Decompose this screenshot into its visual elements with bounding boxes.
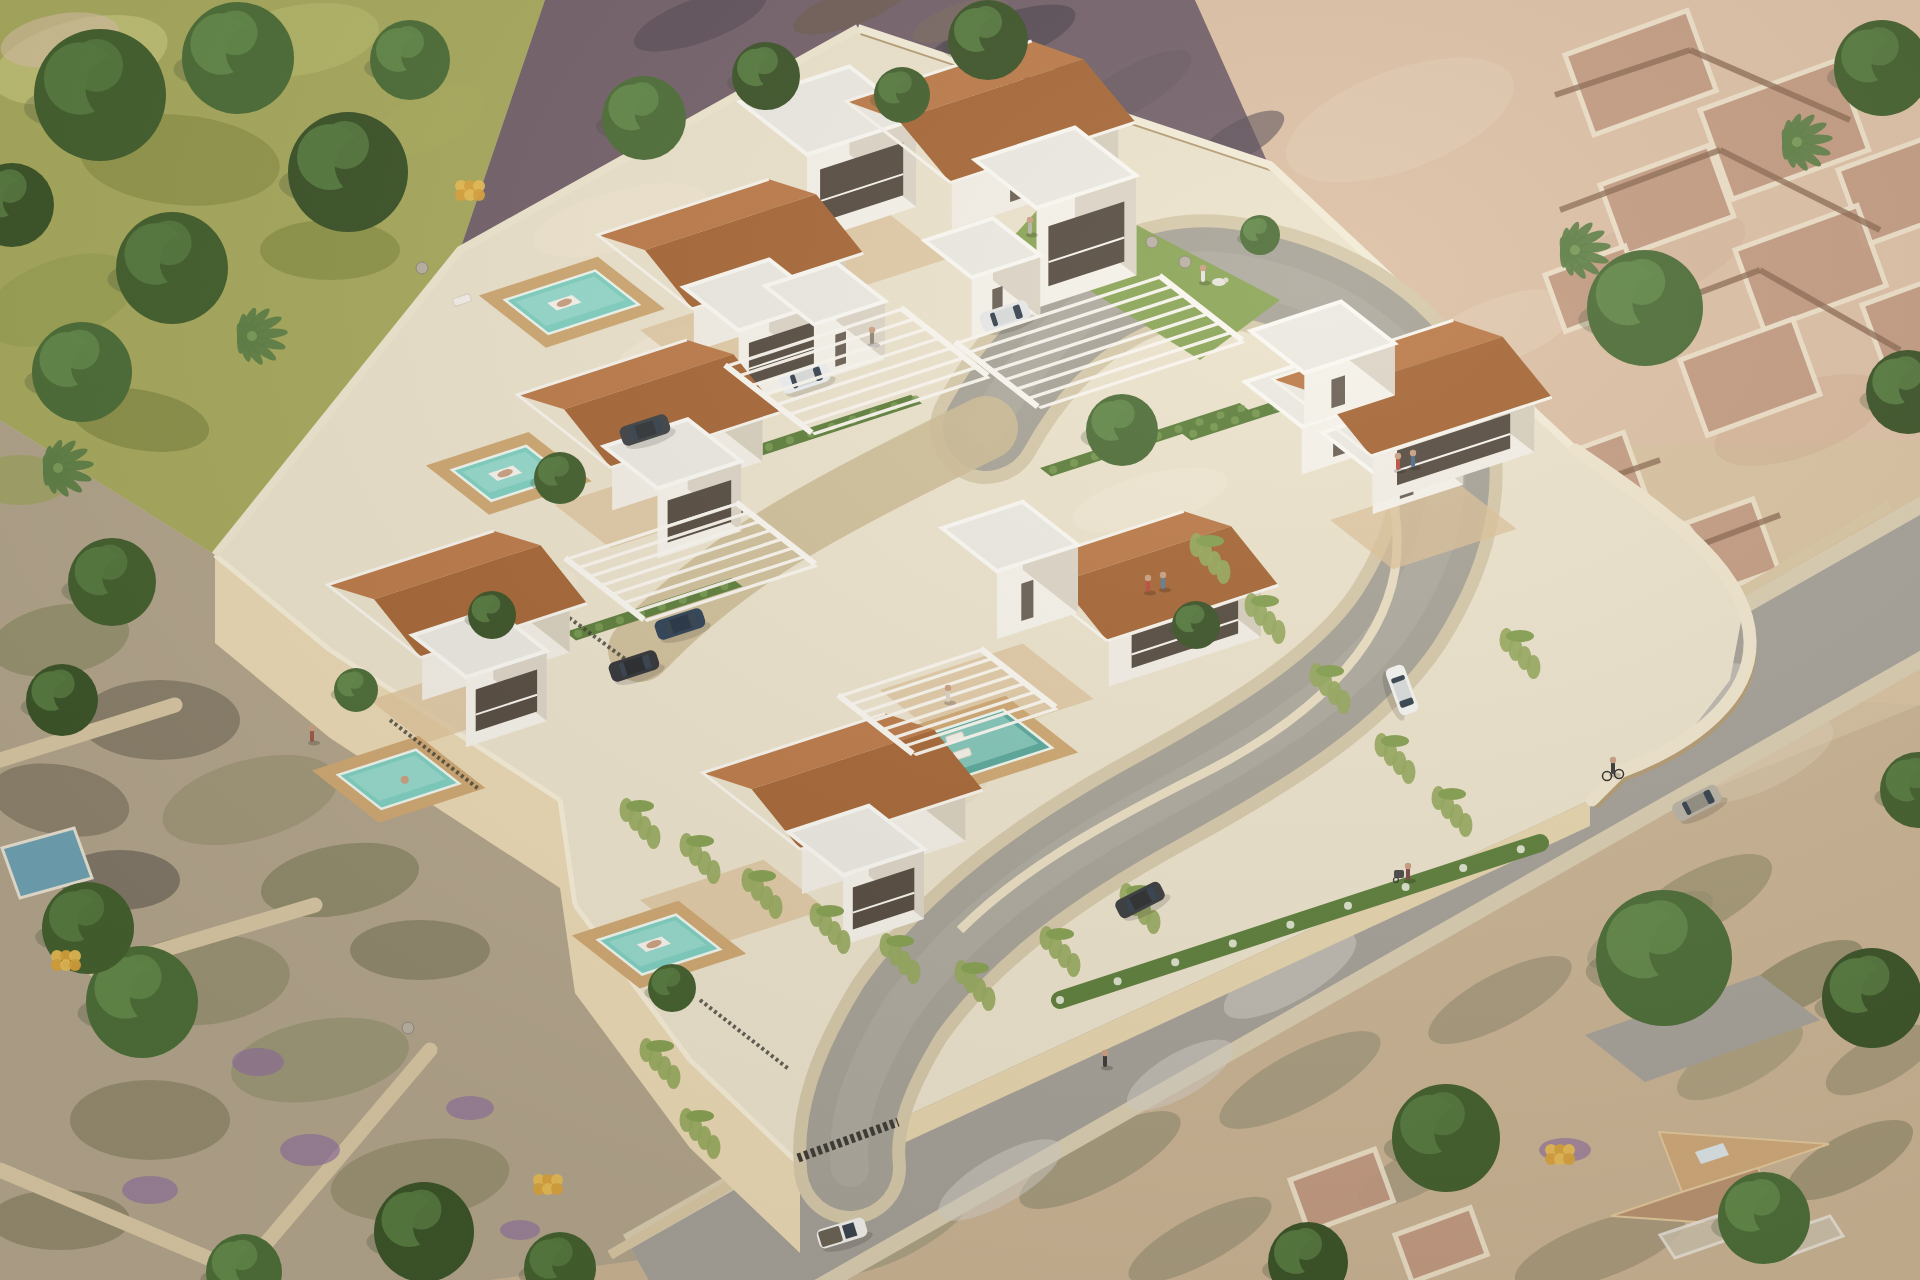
- aerial-site-render: [0, 0, 1920, 1280]
- site-plan-svg: [0, 0, 1920, 1280]
- light-overlay: [0, 0, 1920, 1280]
